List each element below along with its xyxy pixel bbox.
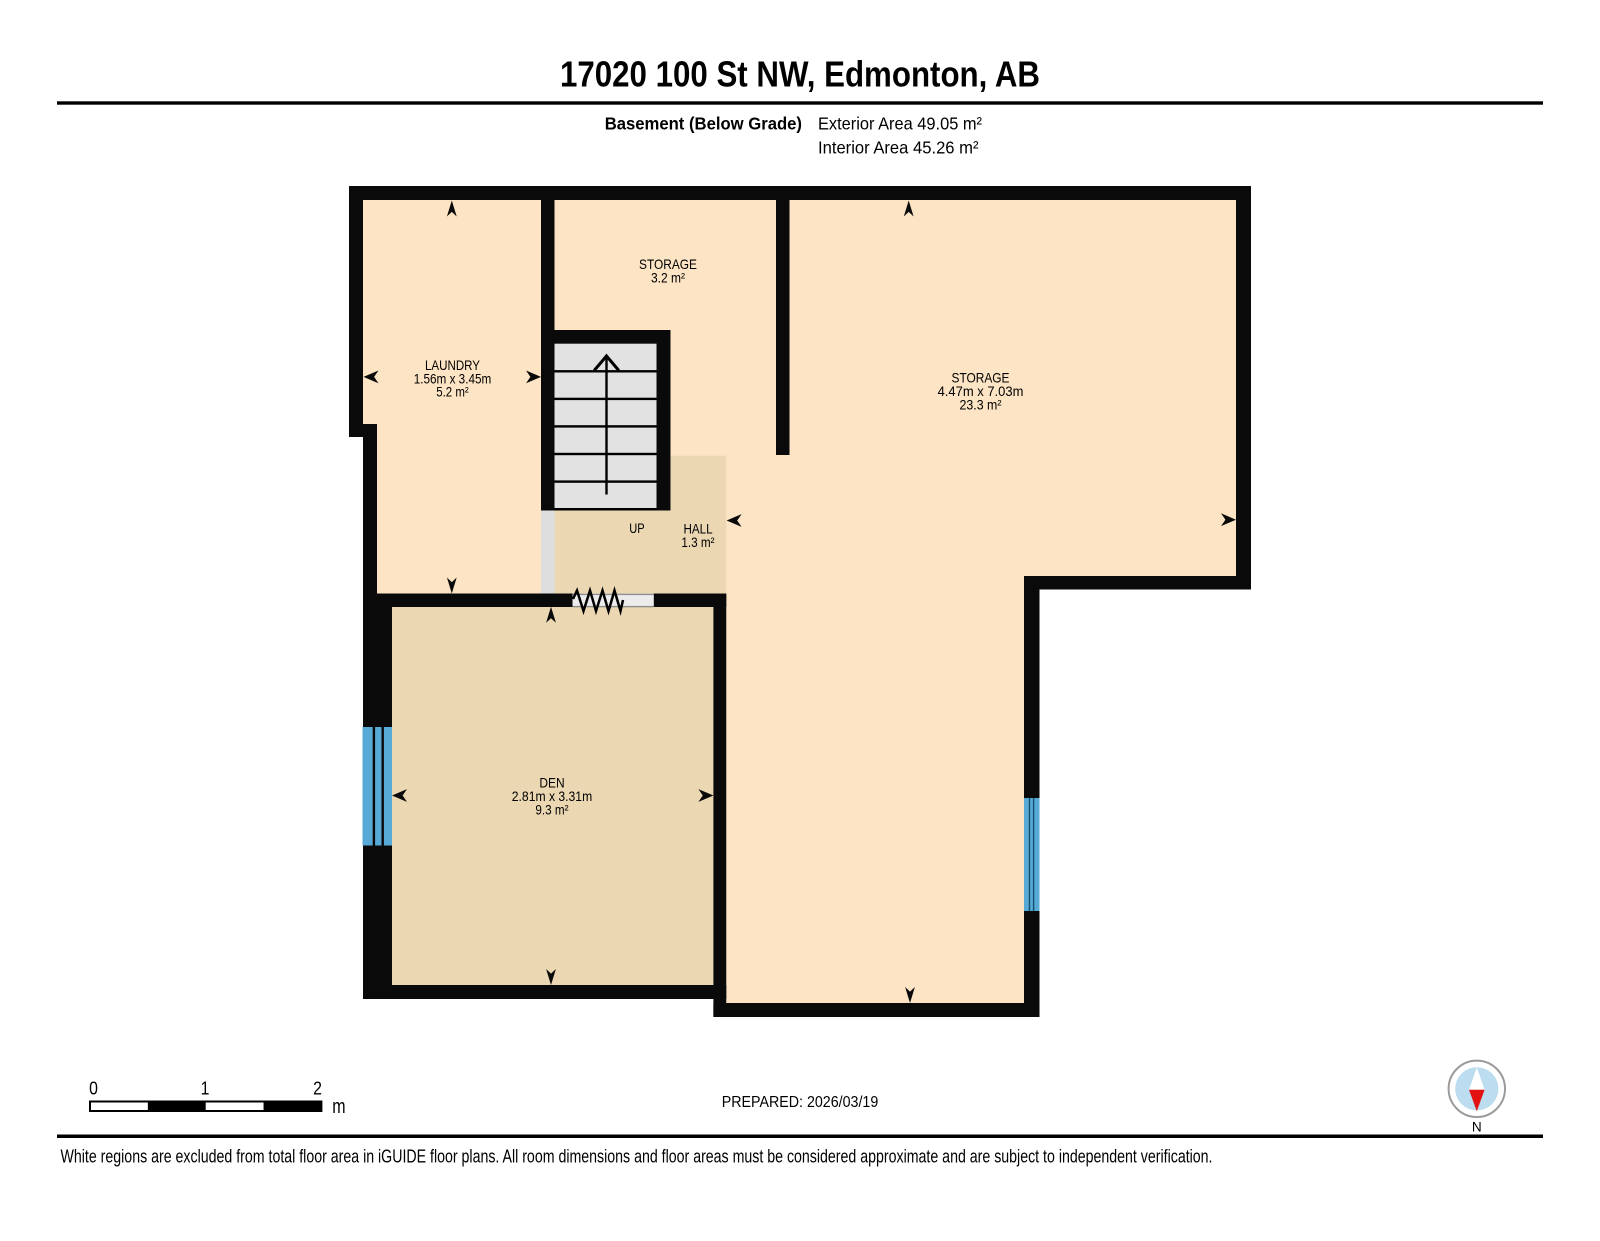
svg-text:1.3 m²: 1.3 m²: [681, 534, 714, 550]
svg-text:17020 100 St NW, Edmonton, AB: 17020 100 St NW, Edmonton, AB: [560, 54, 1040, 95]
svg-text:Exterior Area 49.05 m²: Exterior Area 49.05 m²: [818, 114, 982, 134]
svg-text:m: m: [332, 1095, 345, 1118]
svg-text:UP: UP: [629, 520, 644, 536]
svg-text:N: N: [1472, 1120, 1482, 1135]
svg-text:3.2 m²: 3.2 m²: [651, 270, 685, 286]
svg-text:Interior Area 45.26 m²: Interior Area 45.26 m²: [818, 138, 979, 158]
svg-text:PREPARED: 2026/03/19: PREPARED: 2026/03/19: [722, 1094, 879, 1111]
svg-text:5.2 m²: 5.2 m²: [436, 384, 469, 400]
svg-text:White regions are excluded fro: White regions are excluded from total fl…: [61, 1147, 1213, 1167]
svg-text:2: 2: [313, 1079, 322, 1099]
svg-text:0: 0: [89, 1079, 98, 1099]
svg-text:23.3 m²: 23.3 m²: [960, 397, 1002, 413]
svg-text:9.3 m²: 9.3 m²: [535, 802, 568, 818]
svg-text:Basement (Below Grade): Basement (Below Grade): [605, 114, 802, 134]
svg-text:1: 1: [201, 1079, 210, 1099]
